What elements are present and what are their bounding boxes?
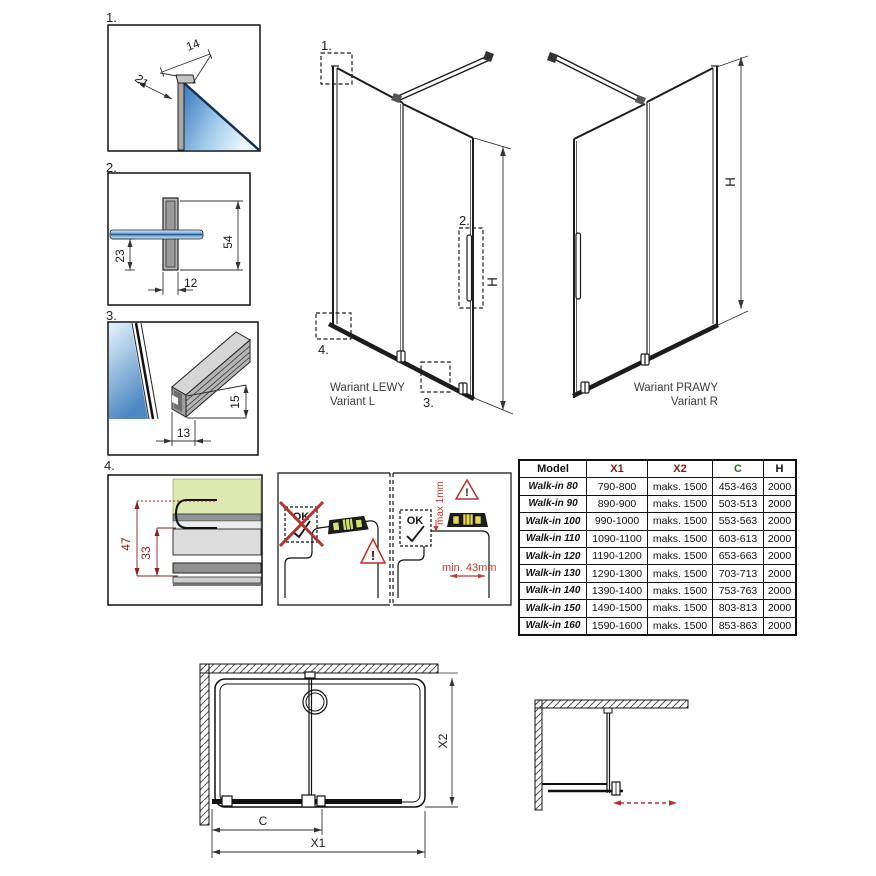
detail-4-label: 4.: [104, 458, 115, 473]
shower-tray: [215, 679, 425, 807]
x1-cell: 1490-1500: [587, 600, 648, 617]
x2-cell: maks. 1500: [648, 478, 713, 495]
spec-table: Model X1 X2 C H Walk-in 80 790-800 maks.…: [518, 459, 797, 636]
x1-cell: 1390-1400: [587, 582, 648, 599]
dim-h-left: H: [485, 277, 500, 287]
diagram-canvas: 1. 14 21 2.: [0, 0, 876, 876]
h-cell: 2000: [764, 478, 797, 495]
elevation-variant-l: 1. 2. 3. 4. H Wariant LEWY Variant L: [300, 10, 520, 422]
callout-boxes: [316, 53, 483, 392]
x2-cell: maks. 1500: [648, 547, 713, 564]
callout-1-label: 1.: [321, 38, 332, 53]
walkin-structure: [554, 55, 719, 398]
callout-2-label: 2.: [459, 213, 470, 228]
warning-mark: !: [371, 548, 375, 563]
header-c: C: [713, 460, 764, 478]
c-cell: 803-813: [713, 600, 764, 617]
model-cell: Walk-in 130: [519, 565, 587, 582]
dim-c-label: C: [259, 814, 268, 828]
model-cell: Walk-in 80: [519, 478, 587, 495]
h-cell: 2000: [764, 617, 797, 635]
variant-l-subtitle: Variant L: [330, 396, 376, 408]
c-cell: 753-763: [713, 582, 764, 599]
spirit-level-icon: [447, 513, 488, 527]
h-cell: 2000: [764, 530, 797, 547]
table-row: Walk-in 160 1590-1600 maks. 1500 853-863…: [519, 617, 796, 635]
c-cell: 603-613: [713, 530, 764, 547]
dim-23: 23: [113, 249, 127, 263]
max-gap-label: max 1mm: [435, 481, 446, 525]
header-model: Model: [519, 460, 587, 478]
c-cell: 503-513: [713, 495, 764, 512]
ok-label: OK: [407, 515, 424, 527]
callout-4-label: 4.: [318, 342, 329, 357]
plan-view: C X1 X2: [190, 653, 475, 873]
x2-cell: maks. 1500: [648, 513, 713, 530]
h-cell: 2000: [764, 582, 797, 599]
table-row: Walk-in 150 1490-1500 maks. 1500 803-813…: [519, 600, 796, 617]
height-dimension: [717, 56, 748, 325]
dim-x1-label: X1: [311, 836, 326, 850]
table-row: Walk-in 80 790-800 maks. 1500 453-463 20…: [519, 478, 796, 495]
variant-r-title: Wariant PRAWY: [634, 382, 718, 394]
min-width-label: min. 43mm: [442, 562, 496, 574]
h-cell: 2000: [764, 600, 797, 617]
c-cell: 553-563: [713, 513, 764, 530]
sliding-direction-view: [520, 678, 725, 828]
x1-cell: 990-1000: [587, 513, 648, 530]
x2-cell: maks. 1500: [648, 617, 713, 635]
model-cell: Walk-in 150: [519, 600, 587, 617]
side-wall: [200, 664, 209, 825]
dim-x2-label: X2: [436, 733, 450, 748]
model-cell: Walk-in 110: [519, 530, 587, 547]
header-h: H: [764, 460, 797, 478]
wall-bracket: [604, 708, 612, 713]
floor-section-layers: [173, 479, 261, 586]
wall-profile-section: [178, 77, 184, 150]
table-row: Walk-in 90 890-900 maks. 1500 503-513 20…: [519, 495, 796, 512]
dim-13: 13: [177, 426, 191, 440]
dim-15: 15: [228, 395, 242, 409]
detail-3-label: 3.: [106, 308, 117, 323]
model-cell: Walk-in 90: [519, 495, 587, 512]
wall-bracket: [305, 672, 315, 678]
x1-cell: 1290-1300: [587, 565, 648, 582]
header-x2: X2: [648, 460, 713, 478]
side-wall: [535, 700, 542, 810]
x2-cell: maks. 1500: [648, 582, 713, 599]
panel-not-ok: OK !: [278, 473, 390, 605]
detail-1-label: 1.: [106, 10, 117, 25]
dim-47: 47: [119, 537, 133, 551]
model-cell: Walk-in 120: [519, 547, 587, 564]
model-cell: Walk-in 160: [519, 617, 587, 635]
variant-r-subtitle: Variant R: [671, 396, 718, 408]
wall-bracket: [547, 52, 558, 63]
door-handle: [576, 233, 581, 299]
x2-cell: maks. 1500: [648, 495, 713, 512]
wall-bracket: [483, 51, 494, 62]
dim-12: 12: [184, 276, 198, 290]
variant-l-title: Wariant LEWY: [330, 382, 405, 394]
elevation-variant-r: H Wariant PRAWY Variant R: [538, 10, 766, 422]
detail-4-drawing: 4. 47 33: [98, 456, 268, 608]
h-cell: 2000: [764, 495, 797, 512]
x1-cell: 890-900: [587, 495, 648, 512]
h-cell: 2000: [764, 565, 797, 582]
dim-54: 54: [221, 235, 235, 249]
height-dimension: [474, 138, 513, 414]
x1-cell: 790-800: [587, 478, 648, 495]
x1-cell: 1590-1600: [587, 617, 648, 635]
door-handle: [467, 235, 472, 301]
table-header-row: Model X1 X2 C H: [519, 460, 796, 478]
x1-cell: 1090-1100: [587, 530, 648, 547]
detail-2-drawing: 2. 54 23 12: [98, 158, 258, 308]
warning-mark: !: [465, 487, 469, 499]
table-row: Walk-in 140 1390-1400 maks. 1500 753-763…: [519, 582, 796, 599]
c-cell: 853-863: [713, 617, 764, 635]
profile-cap: [176, 75, 195, 83]
back-wall: [535, 700, 688, 708]
dim-33: 33: [139, 546, 153, 560]
model-cell: Walk-in 100: [519, 513, 587, 530]
back-wall: [200, 664, 438, 673]
x2-cell: maks. 1500: [648, 565, 713, 582]
panel-ok: OK max 1mm ! min. 43mm: [393, 473, 511, 605]
table-row: Walk-in 110 1090-1100 maks. 1500 603-613…: [519, 530, 796, 547]
model-cell: Walk-in 140: [519, 582, 587, 599]
h-cell: 2000: [764, 513, 797, 530]
detail-1-drawing: 1. 14 21: [98, 6, 268, 158]
detail-3-drawing: 3. 13 15: [98, 306, 266, 458]
c-cell: 653-663: [713, 547, 764, 564]
x1-cell: 1190-1200: [587, 547, 648, 564]
table-row: Walk-in 120 1190-1200 maks. 1500 653-663…: [519, 547, 796, 564]
x2-cell: maks. 1500: [648, 600, 713, 617]
table-row: Walk-in 130 1290-1300 maks. 1500 703-713…: [519, 565, 796, 582]
h-cell: 2000: [764, 547, 797, 564]
dim-h-right: H: [723, 177, 738, 187]
x2-cell: maks. 1500: [648, 530, 713, 547]
table-row: Walk-in 100 990-1000 maks. 1500 553-563 …: [519, 513, 796, 530]
c-cell: 453-463: [713, 478, 764, 495]
callout-3-label: 3.: [423, 395, 434, 410]
c-cell: 703-713: [713, 565, 764, 582]
install-instructions: OK ! OK max 1mm: [277, 468, 515, 610]
header-x1: X1: [587, 460, 648, 478]
